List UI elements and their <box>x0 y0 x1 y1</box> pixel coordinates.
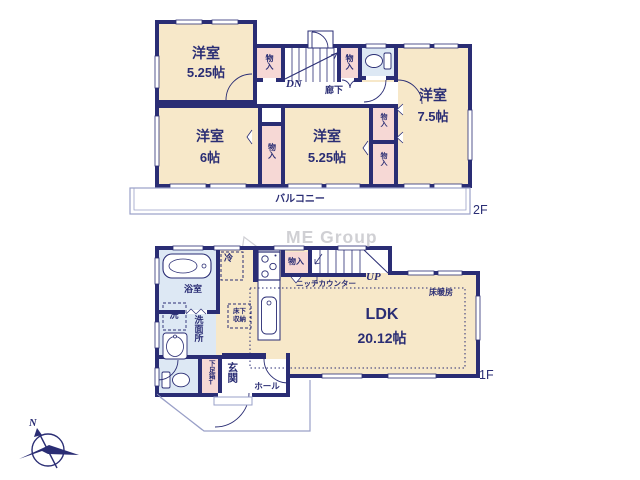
floor1-label: 1F <box>479 369 494 382</box>
toilet-icon-1f <box>162 372 190 388</box>
stove-icon <box>258 252 280 280</box>
room-e-name: 洋室 <box>419 88 447 102</box>
room-center-size: 5.25帖 <box>308 151 346 164</box>
closet-nw-label: 物入 <box>265 54 273 70</box>
bathtub-icon <box>163 254 211 278</box>
washbasin-icon <box>163 333 187 359</box>
room-center-name: 洋室 <box>313 129 341 143</box>
floor-heating-label: 床暖房 <box>429 289 453 297</box>
closet-n-label: 物入 <box>345 54 353 70</box>
shoe-cabinet-label: 下足箱T <box>207 360 214 387</box>
floor2-label: 2F <box>473 204 488 217</box>
stairs-down-label: DN <box>286 79 302 90</box>
entrance-label: 玄関 <box>227 362 238 383</box>
underfloor-storage-label: 床下収納 <box>231 308 248 324</box>
compass-icon <box>19 428 79 468</box>
hall-label: ホール <box>254 382 280 391</box>
floorplan-canvas: 洋室 5.25帖 洋室 6帖 洋室 5.25帖 洋室 7.5帖 物入 物入 物入… <box>0 0 640 480</box>
room-nw-name: 洋室 <box>192 46 220 60</box>
closet-e-upper-label: 物入 <box>380 113 387 127</box>
bathroom-label: 浴室 <box>184 285 202 294</box>
washer-label: 洗 <box>169 311 178 320</box>
niche-counter-label: ニッチカウンター <box>296 280 356 288</box>
hallway-label: 廊下 <box>325 86 343 95</box>
watermark-text: ME Group <box>286 229 378 247</box>
kitchen-sink-icon <box>262 297 277 334</box>
washroom-label: 洗面所 <box>194 315 203 342</box>
kitchen-counter <box>258 250 280 340</box>
room-e-size: 7.5帖 <box>417 110 448 123</box>
refrigerator-label: 冷 <box>224 254 233 263</box>
ldk-name: LDK <box>366 307 399 323</box>
toilet-icon-2f <box>366 53 392 69</box>
balcony-label: バルコニー <box>275 195 325 205</box>
ldk-size: 20.12帖 <box>357 331 406 345</box>
closet-e-lower-label: 物入 <box>380 152 387 166</box>
room-w-size: 6帖 <box>200 151 220 164</box>
closet-1f-label: 物入 <box>288 258 304 266</box>
room-w-name: 洋室 <box>196 129 224 143</box>
room-nw-size: 5.25帖 <box>187 66 225 79</box>
compass-north-label: N <box>29 419 37 430</box>
stairs-up-label: UP <box>366 272 381 283</box>
floor1-plan <box>155 246 480 431</box>
closet-mid-label: 物入 <box>268 143 276 159</box>
stair-landing-door-2f <box>308 31 333 48</box>
